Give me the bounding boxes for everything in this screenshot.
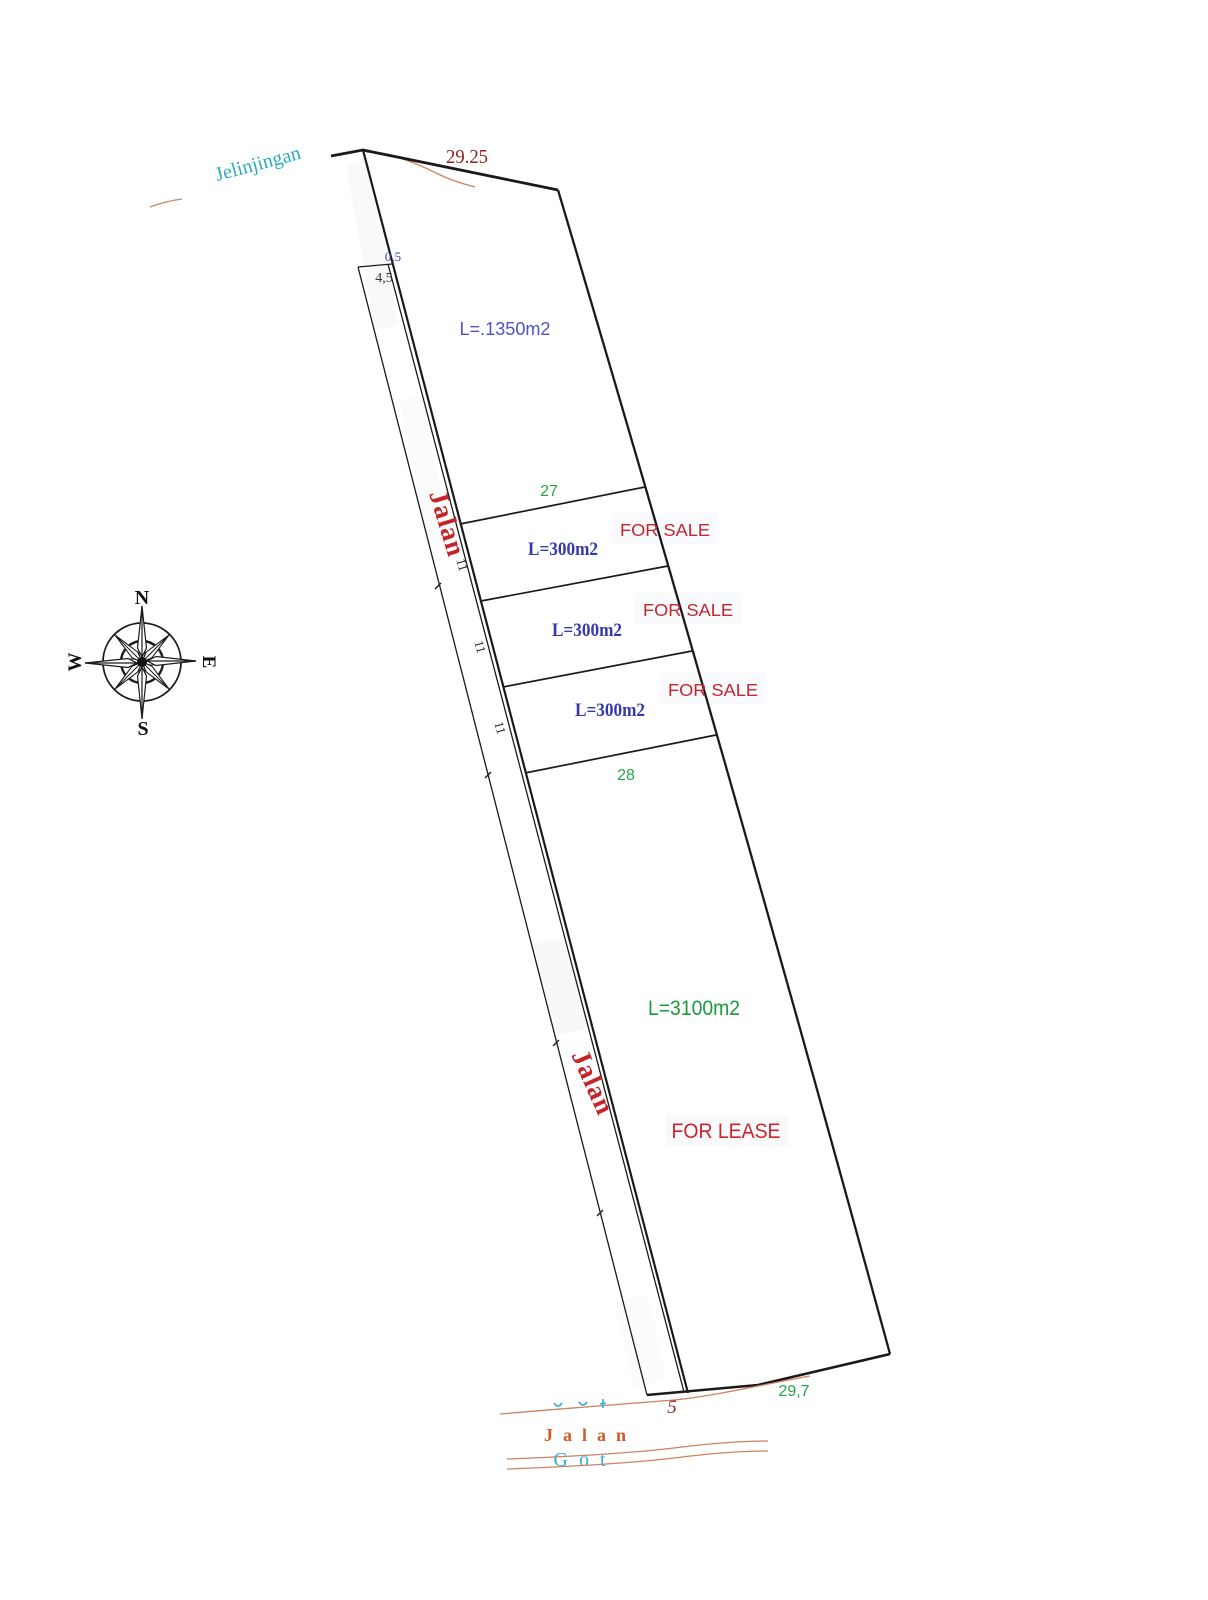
svg-text:FOR SALE: FOR SALE xyxy=(668,680,758,700)
svg-text:29.25: 29.25 xyxy=(446,146,488,168)
svg-text:L=3100m2: L=3100m2 xyxy=(648,997,740,1020)
svg-text:L=300m2: L=300m2 xyxy=(575,700,645,721)
svg-text:W: W xyxy=(65,653,86,672)
svg-text:S: S xyxy=(137,718,148,740)
svg-text:L=.1350m2: L=.1350m2 xyxy=(460,319,551,339)
svg-text:27: 27 xyxy=(540,483,558,500)
svg-text:0,5: 0,5 xyxy=(385,249,401,264)
svg-text:Jelinjingan: Jelinjingan xyxy=(213,142,303,186)
svg-text:Jalan: Jalan xyxy=(544,1425,636,1445)
svg-text:L=300m2: L=300m2 xyxy=(552,620,622,641)
svg-text:L=300m2: L=300m2 xyxy=(528,539,598,560)
svg-text:FOR SALE: FOR SALE xyxy=(643,600,733,620)
svg-text:Got: Got xyxy=(554,1449,617,1471)
svg-text:4,5: 4,5 xyxy=(375,271,393,286)
svg-text:E: E xyxy=(198,656,219,669)
svg-text:11: 11 xyxy=(491,720,509,736)
svg-text:N: N xyxy=(135,587,150,609)
svg-text:29,7: 29,7 xyxy=(778,1383,809,1400)
svg-text:11: 11 xyxy=(471,639,489,655)
svg-text:FOR LEASE: FOR LEASE xyxy=(672,1120,781,1143)
svg-text:FOR SALE: FOR SALE xyxy=(620,520,710,540)
svg-text:28: 28 xyxy=(617,767,635,784)
